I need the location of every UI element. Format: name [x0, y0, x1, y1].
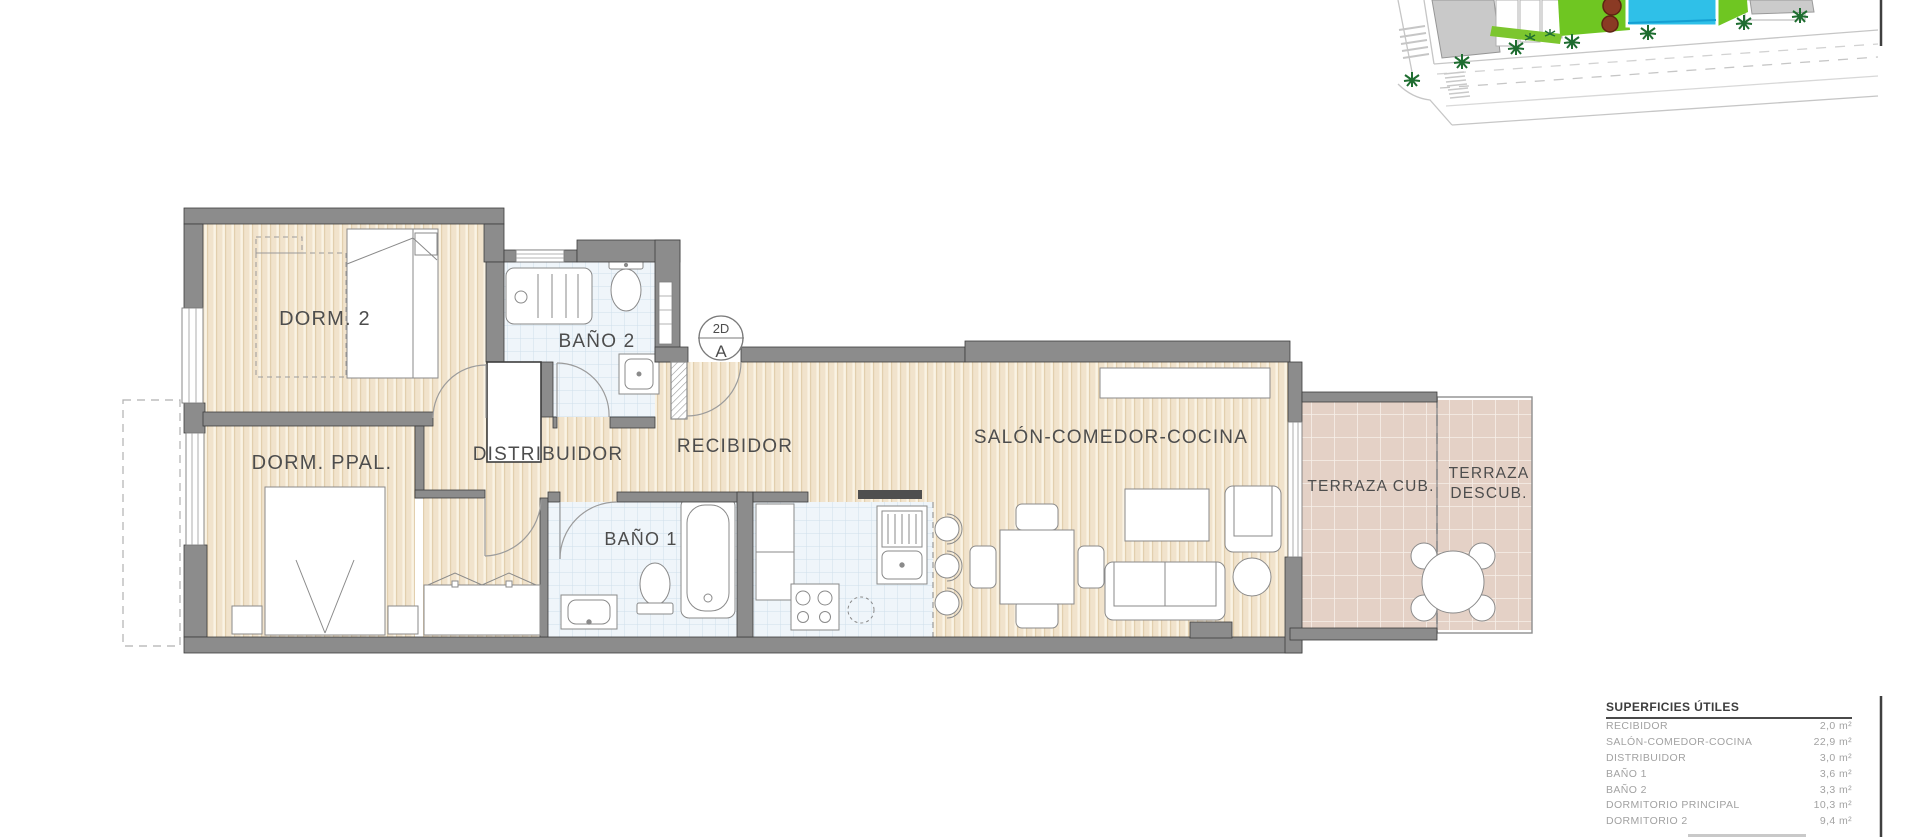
banyo1-bathtub [681, 498, 735, 618]
label-terraza-cub: TERRAZA CUB. [1307, 478, 1434, 495]
areas-table-title: SUPERFICIES ÚTILES [1606, 700, 1852, 719]
section-marker: 2D A [698, 316, 744, 361]
label-distribuidor: DISTRIBUIDOR [473, 444, 624, 465]
label-terraza-descub-1: TERRAZA [1449, 465, 1530, 482]
site-plan-minimap [1398, 0, 1878, 125]
label-salon: SALÓN-COMEDOR-COCINA [974, 426, 1248, 448]
banyo2-shower [506, 268, 592, 324]
row-value: 2,0 m² [1820, 719, 1852, 735]
table-row: SALÓN-COMEDOR-COCINA 22,9 m² [1606, 735, 1852, 751]
shaft-banyo2-wall [659, 282, 672, 344]
window-salon-terraza [1288, 422, 1302, 557]
label-dorm-ppal: DORM. PPAL. [252, 452, 393, 474]
table-row: BAÑO 2 3,3 m² [1606, 783, 1852, 799]
row-label: DORMITORIO 2 [1606, 814, 1688, 830]
nightstand-left [232, 606, 262, 634]
row-label: BAÑO 1 [1606, 767, 1647, 783]
floor-terraza [1302, 400, 1532, 630]
label-recibidor: RECIBIDOR [677, 436, 793, 457]
kitchen-counter-dark-bar [858, 490, 922, 499]
site-pool [1627, 0, 1717, 26]
table-row: DORMITORIO 2 9,4 m² [1606, 814, 1852, 830]
table-row: DISTRIBUIDOR 3,0 m² [1606, 751, 1852, 767]
row-label: RECIBIDOR [1606, 719, 1668, 735]
row-value: 22,9 m² [1814, 735, 1852, 751]
banyo2-sink [619, 354, 659, 394]
terraza-table [1422, 551, 1484, 613]
row-value: 10,3 m² [1814, 798, 1852, 814]
kitchen-sink-unit [877, 506, 927, 584]
nightstand-right [388, 606, 418, 634]
row-value: 9,4 m² [1820, 814, 1852, 830]
banyo1-sink [561, 595, 617, 629]
row-value: 3,6 m² [1820, 767, 1852, 783]
armchair [1225, 486, 1281, 552]
kitchen-tall-units [756, 504, 794, 600]
table-row: DORMITORIO PRINCIPAL 10,3 m² [1606, 798, 1852, 814]
dorm2-bed [347, 229, 438, 378]
side-table [1233, 558, 1271, 596]
banyo2-toilet [609, 257, 643, 311]
salon-sideboard [1125, 489, 1209, 541]
floorplan-page: 2D A DORM. 2 BAÑO 2 DORM. PPAL. DISTRIBU… [0, 0, 1920, 837]
row-label: DISTRIBUIDOR [1606, 751, 1686, 767]
row-label: BAÑO 2 [1606, 783, 1647, 799]
window-dorm2-left [182, 308, 203, 403]
row-value: 3,0 m² [1820, 751, 1852, 767]
window-dorm-ppal-left [186, 433, 204, 545]
kitchen-bar-stools [935, 514, 962, 618]
section-marker-bottom-label: A [715, 342, 727, 361]
label-banyo1: BAÑO 1 [604, 528, 677, 549]
row-value: 3,3 m² [1820, 783, 1852, 799]
crosswalk-ladder [1444, 72, 1470, 98]
label-banyo2: BAÑO 2 [559, 330, 636, 352]
dorm-ppal-bed [265, 487, 385, 635]
kitchen-cooktop [791, 584, 839, 630]
label-dorm2: DORM. 2 [279, 308, 371, 330]
table-row: BAÑO 1 3,6 m² [1606, 767, 1852, 783]
row-label: DORMITORIO PRINCIPAL [1606, 798, 1740, 814]
label-terraza-descub-2: DESCUB. [1450, 485, 1527, 502]
salon-top-counter [1100, 368, 1270, 398]
section-marker-top-label: 2D [713, 321, 730, 336]
site-building-gray [1432, 0, 1500, 58]
areas-table: SUPERFICIES ÚTILES RECIBIDOR 2,0 m² SALÓ… [1606, 700, 1852, 830]
table-row: RECIBIDOR 2,0 m² [1606, 719, 1852, 735]
window-banyo2-top [516, 250, 564, 262]
projection-dashed-rect [123, 400, 180, 646]
row-label: SALÓN-COMEDOR-COCINA [1606, 735, 1752, 751]
sofa [1105, 562, 1225, 620]
